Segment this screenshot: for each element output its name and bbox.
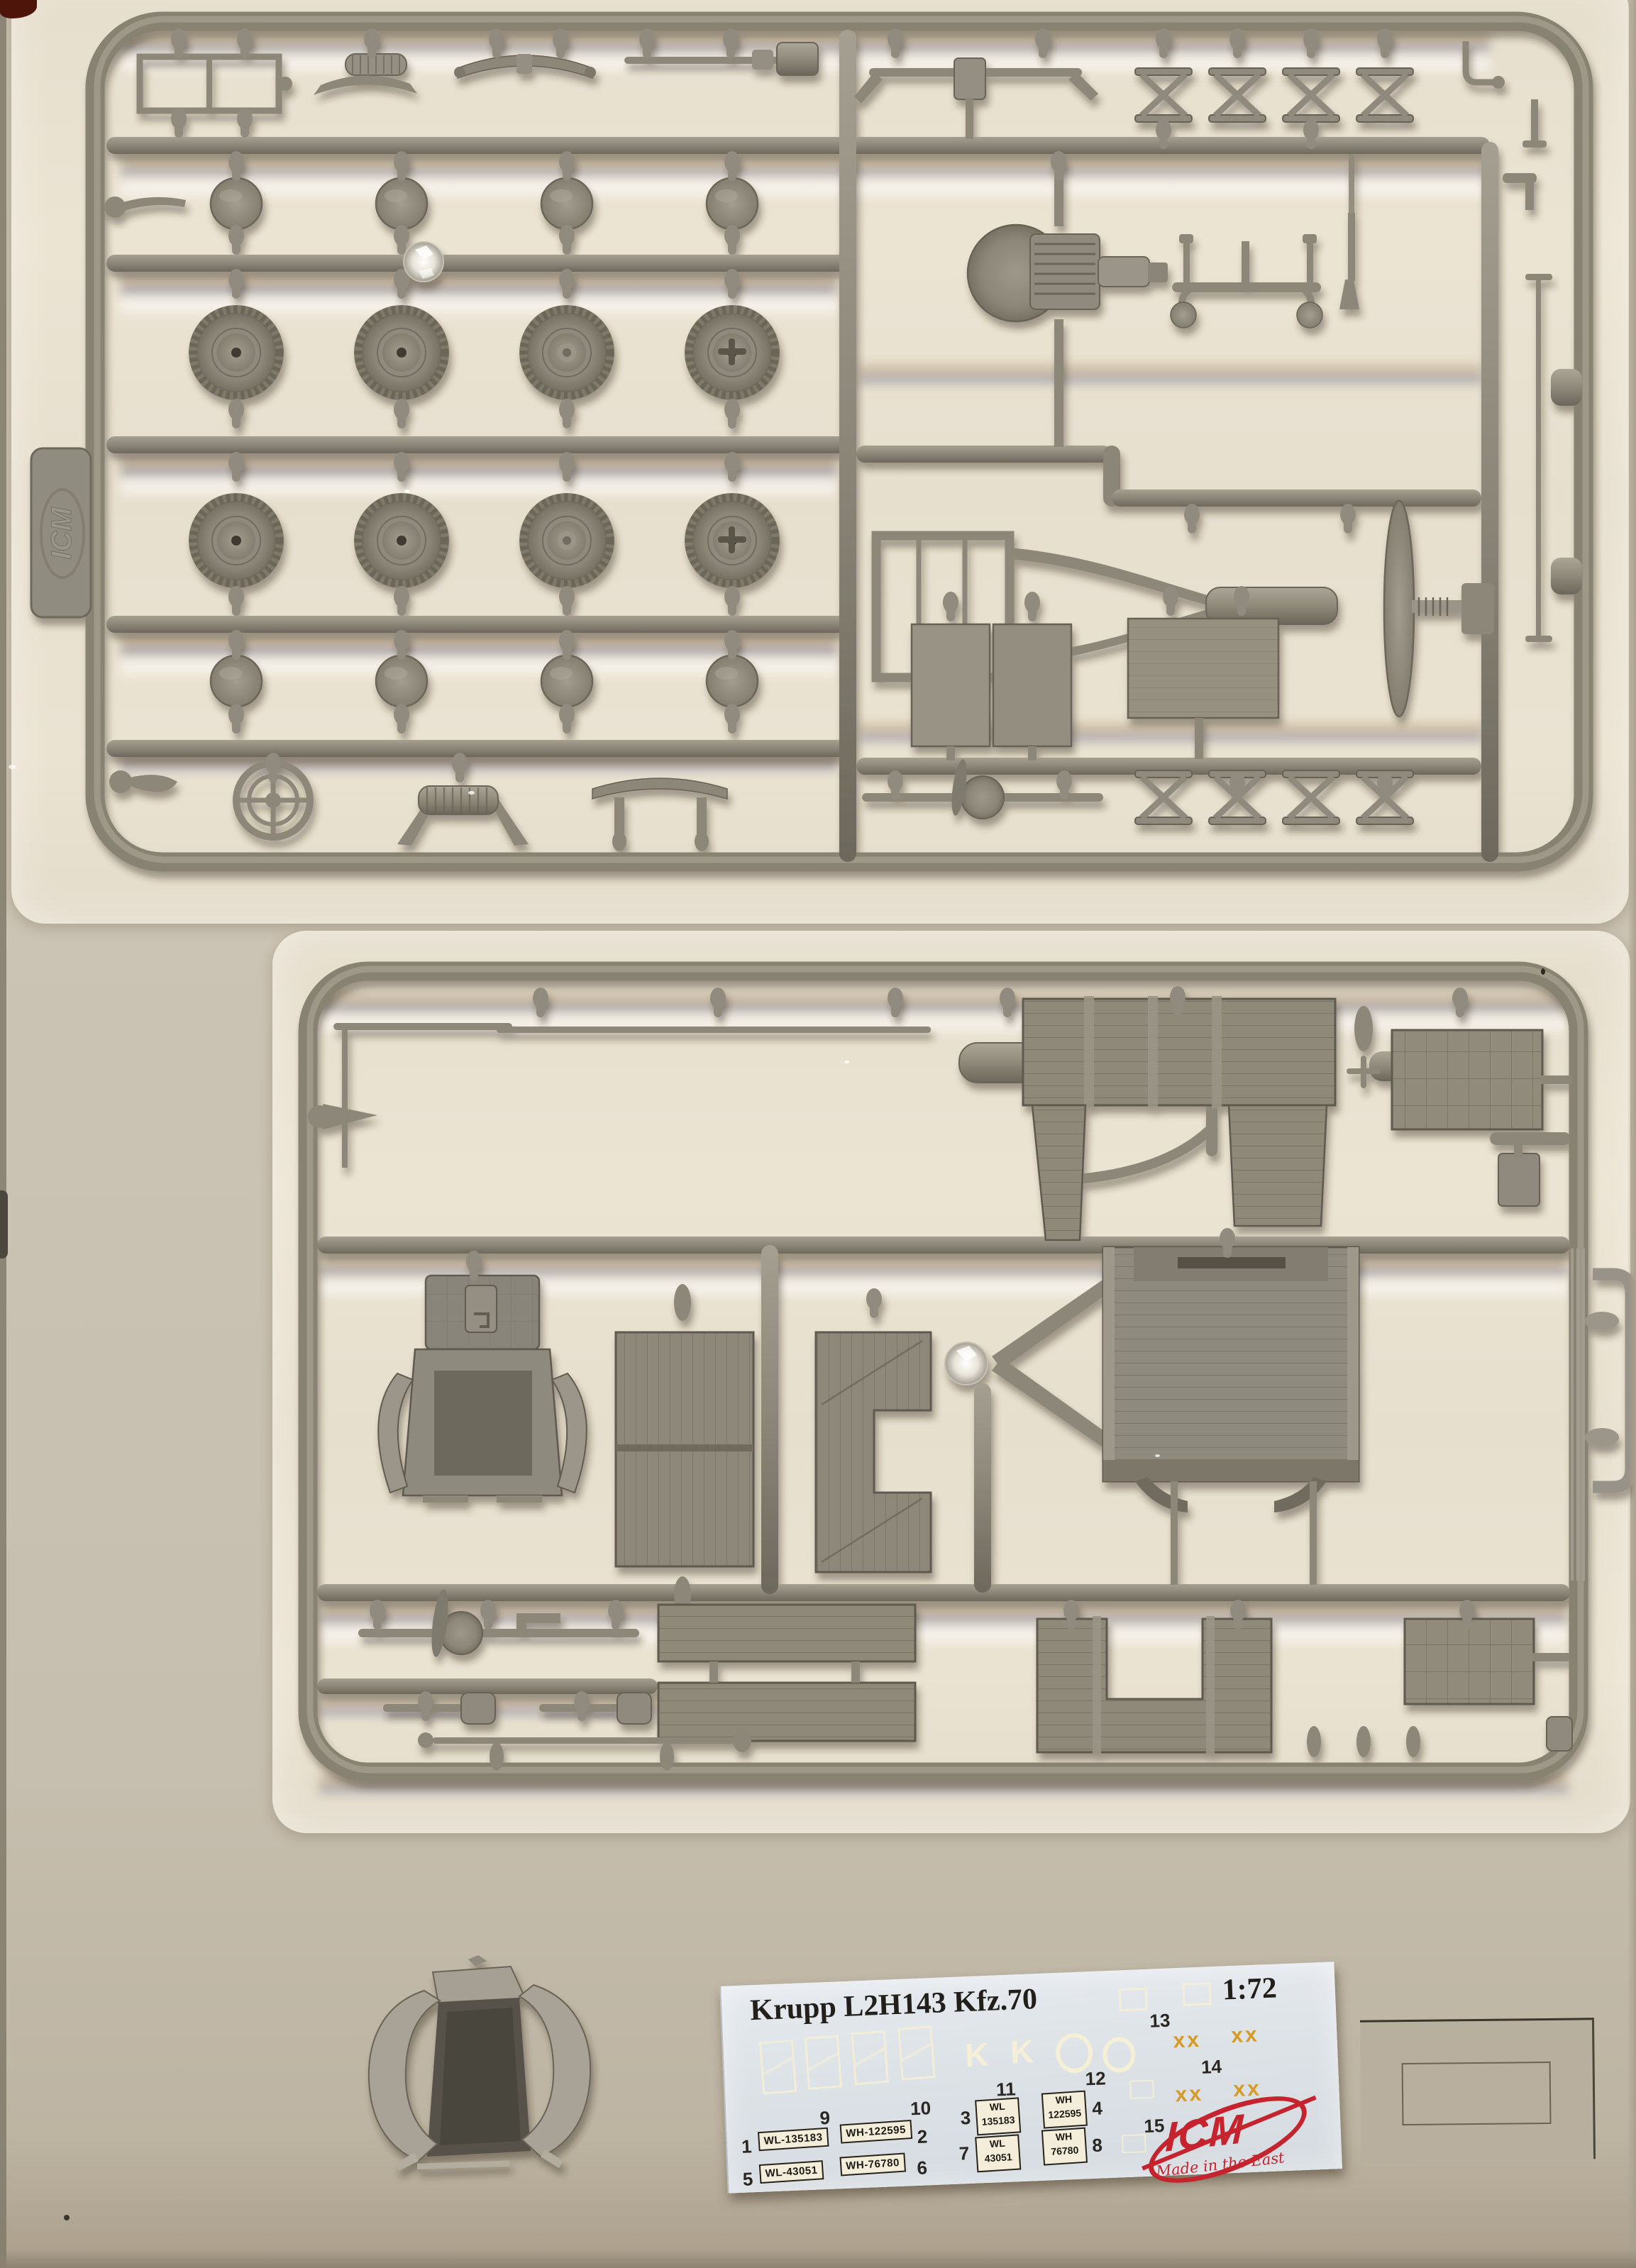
plate-text: WH-76780 xyxy=(846,2157,900,2172)
scan-edge-left xyxy=(0,0,6,2268)
icm-brand-logo: ICM Made in the East xyxy=(1137,2092,1327,2183)
right-column-parts-a xyxy=(1503,173,1582,642)
clear-film-card xyxy=(1360,2018,1596,2161)
decal-number-13: 13 xyxy=(1149,2010,1171,2032)
scan-edge-bottom xyxy=(0,2250,1636,2268)
door-frame-part xyxy=(1585,1274,1631,1487)
dust-speck xyxy=(64,2215,70,2220)
dust-speck xyxy=(1541,968,1545,975)
plate-number: 76780 xyxy=(1051,2144,1079,2157)
white-plate-outline-decal xyxy=(851,2030,889,2085)
loose-cab-front-part xyxy=(369,1955,590,2171)
plate-prefix: WH xyxy=(1055,2093,1072,2106)
edge-blotch xyxy=(0,1190,8,1259)
decal-scale: 1:72 xyxy=(1222,1971,1278,2007)
license-plate-square: WH 76780 xyxy=(1041,2128,1088,2166)
tactical-letter-decal: K xyxy=(964,2035,989,2074)
clear-blob-2 xyxy=(945,1342,988,1385)
sprue-b xyxy=(308,969,1631,1772)
tow-hook-part xyxy=(109,770,177,793)
license-plate-long: WH-122595 xyxy=(840,2120,912,2144)
tactical-letter-decal: K xyxy=(1010,2032,1034,2071)
wheel-row-2 xyxy=(189,493,780,588)
decal-title: Krupp L2H143 Kfz.70 xyxy=(749,1982,1037,2028)
license-plate-long: WH-76780 xyxy=(839,2153,905,2176)
plate-prefix: WL xyxy=(989,2101,1005,2113)
scan-edge-right xyxy=(1627,0,1636,2268)
sprue-tab-embossed-logo: ICM xyxy=(46,507,77,560)
white-square-decal xyxy=(1182,1982,1211,2006)
clear-blob xyxy=(404,242,443,282)
plank-panel-2 xyxy=(658,1661,915,1741)
plate-number: 43051 xyxy=(984,2151,1012,2164)
white-plate-outline-decal xyxy=(759,2040,797,2094)
icm-brand-name: ICM xyxy=(1165,2105,1246,2162)
dust-speck xyxy=(9,765,16,769)
plate-prefix: WH xyxy=(1055,2130,1072,2143)
plate-text: WH-122595 xyxy=(846,2124,906,2140)
decal-number-14: 14 xyxy=(1201,2056,1222,2079)
plate-number: 122595 xyxy=(1048,2107,1082,2120)
dust-speck xyxy=(844,1061,849,1063)
small-pegs xyxy=(1307,1717,1572,1757)
dust-speck xyxy=(468,791,475,795)
ring-decal xyxy=(1102,2037,1136,2074)
decal-number-6: 6 xyxy=(917,2157,928,2179)
small-box-part xyxy=(1490,1132,1571,1206)
white-plate-outline-decal xyxy=(805,2035,842,2090)
cross-marks-decal: xx xyxy=(1175,2082,1204,2108)
cross-marks-decal: xx xyxy=(1173,2028,1202,2054)
license-plate-long: WL-43051 xyxy=(759,2160,824,2184)
pedal-lever-part xyxy=(1171,234,1322,328)
horn-part xyxy=(104,197,186,218)
decal-number-2: 2 xyxy=(917,2125,928,2148)
plank-panel-1 xyxy=(658,1605,915,1661)
plate-prefix: WL xyxy=(989,2137,1005,2150)
decal-number-7: 7 xyxy=(958,2142,970,2165)
dust-speck xyxy=(404,489,410,493)
decal-number-9: 9 xyxy=(819,2107,831,2130)
film-frame-outline xyxy=(1402,2062,1552,2125)
sprue-tab: ICM xyxy=(31,448,91,617)
decal-number-8: 8 xyxy=(1092,2135,1103,2157)
c-panel xyxy=(816,1288,931,1572)
license-plate-long: WL-135183 xyxy=(758,2128,829,2151)
plate-number: 135183 xyxy=(981,2113,1015,2127)
plate-text: WL-43051 xyxy=(765,2164,818,2180)
leaf-spring-bench-part xyxy=(592,778,727,851)
white-plate-outline-decal xyxy=(897,2025,935,2080)
trailer-outline-decal xyxy=(1129,2080,1154,2099)
decal-number-10: 10 xyxy=(910,2097,932,2120)
license-plate-square: WL 43051 xyxy=(975,2134,1021,2172)
bed-side-panel xyxy=(1023,986,1335,1240)
decal-sheet: Krupp L2H143 Kfz.70 1:72 13 K K xx xx 14… xyxy=(719,1962,1342,2194)
wheel-row-1 xyxy=(189,305,780,400)
cross-marks-decal: xx xyxy=(1231,2023,1260,2049)
scanned-model-kit-photo: ICM xyxy=(0,0,1636,2268)
decal-number-1: 1 xyxy=(741,2135,752,2158)
white-square-decal xyxy=(1119,1988,1148,2012)
decal-number-3: 3 xyxy=(960,2107,971,2130)
floor-panel xyxy=(616,1284,753,1613)
sprues-artwork: ICM xyxy=(0,0,1636,2268)
decal-number-12: 12 xyxy=(1085,2067,1106,2090)
dust-speck xyxy=(1155,1454,1160,1457)
plate-text: WL-135183 xyxy=(763,2131,823,2147)
license-plate-square: WL 135183 xyxy=(975,2097,1021,2135)
decal-number-4: 4 xyxy=(1092,2097,1103,2120)
license-plate-square: WH 122595 xyxy=(1041,2091,1088,2129)
tow-rod-part xyxy=(308,1023,512,1168)
decal-number-5: 5 xyxy=(742,2168,753,2191)
